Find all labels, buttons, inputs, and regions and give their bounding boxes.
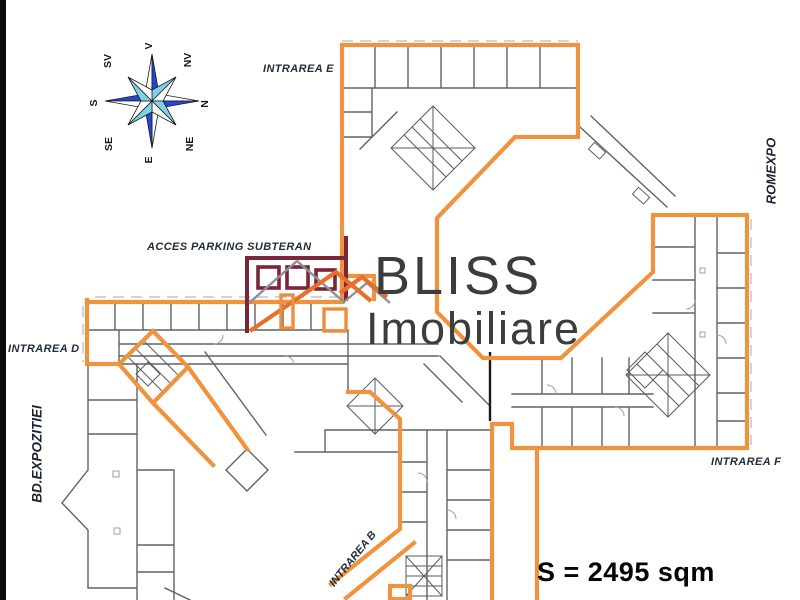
compass-rose-icon: V NV N NE E SE S SV xyxy=(88,42,211,163)
compass-label-n: N xyxy=(199,100,211,108)
entrance-f-label: INTRAREA F xyxy=(711,456,781,468)
compass-label-nv: NV xyxy=(182,53,194,68)
logo-word-bliss: BLISS xyxy=(374,249,542,303)
bd-expozitiei-label: BD.EXPOZITIEI xyxy=(30,405,45,503)
scan-edge-bar xyxy=(0,0,6,600)
compass-label-ne: NE xyxy=(184,137,196,152)
entrance-e-label: INTRAREA E xyxy=(263,63,334,75)
corridor-door-marks xyxy=(588,142,649,204)
compass-label-e: E xyxy=(143,156,155,163)
parking-access-label: ACCES PARKING SUBTERAN xyxy=(147,241,311,253)
logo-word-imobiliare: Imobiliare xyxy=(366,306,581,351)
surface-area-label: S = 2495 sqm xyxy=(537,557,715,588)
compass-label-s: S xyxy=(88,99,100,106)
entrance-d-label: INTRAREA D xyxy=(8,343,79,355)
romexpo-label: ROMEXPO xyxy=(764,138,779,204)
floor-plan-page: V NV N NE E SE S SV INTRAREA E ACCES PAR… xyxy=(0,0,800,600)
compass-label-sv: SV xyxy=(102,54,114,68)
compass-label-se: SE xyxy=(103,137,115,151)
compass-label-v: V xyxy=(143,42,155,49)
